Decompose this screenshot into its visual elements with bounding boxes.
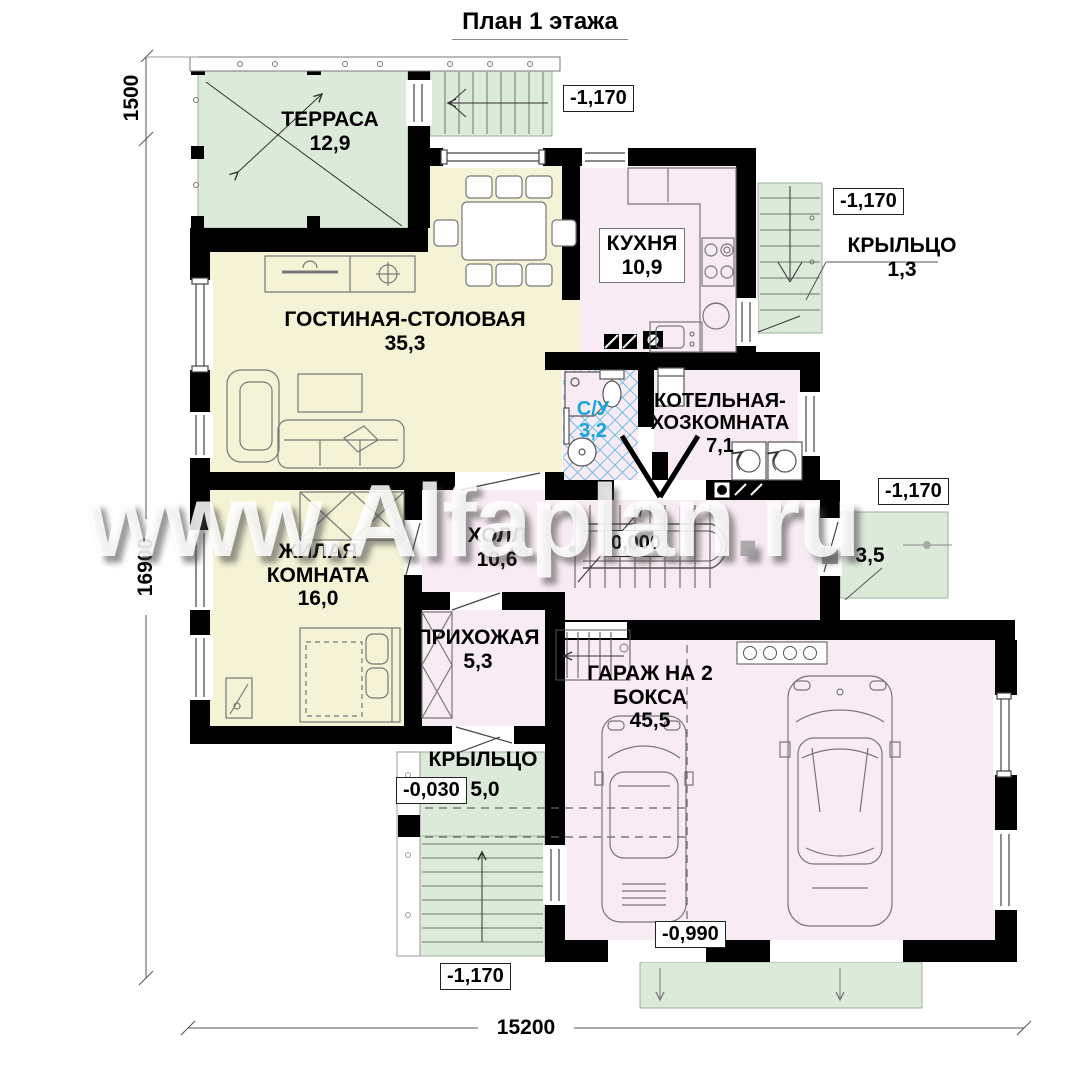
window	[187, 635, 213, 700]
garage-door-opening	[770, 940, 903, 962]
room-area: 10,9	[606, 256, 678, 280]
room-area: 16,0	[238, 587, 398, 611]
room-area: 3,5	[845, 544, 895, 568]
room-area: 35,3	[275, 332, 535, 356]
porch-column	[398, 815, 420, 837]
elevation-badge: -1,170	[563, 85, 634, 112]
elevation-badge: -1,170	[440, 963, 511, 990]
porch-column	[822, 548, 838, 564]
elevation-badge: -1,170	[878, 478, 949, 505]
window	[187, 278, 213, 372]
garage-apron	[640, 962, 922, 1008]
window	[543, 845, 567, 905]
elevation-badge: -0,990	[655, 921, 726, 948]
room-area: 10,6	[447, 548, 547, 572]
window	[187, 530, 213, 610]
dimension-label: 1500	[120, 62, 144, 134]
label-entry: ПРИХОЖАЯ 5,3	[403, 626, 553, 673]
elevation-badge: -1,170	[833, 188, 904, 215]
door-opening	[404, 520, 422, 575]
window	[993, 830, 1019, 910]
dimension-label: 15200	[478, 1016, 574, 1040]
label-porch-right-top: КРЫЛЬЦО 1,3	[832, 234, 972, 281]
label-terrace: ТЕРРАСА 12,9	[250, 108, 410, 155]
window	[993, 693, 1019, 777]
label-hall: ХОЛЛ 10,6	[447, 524, 547, 571]
label-kitchen: КУХНЯ 10,9	[599, 228, 685, 283]
label-bathroom: С/У 3,2	[565, 398, 621, 443]
label-porch-left-name: КРЫЛЬЦО	[418, 748, 548, 772]
elevation-badge: -0,030	[396, 777, 467, 804]
room-area: 5,3	[403, 650, 553, 674]
label-garage: ГАРАЖ НА 2 БОКСА 45,5	[565, 662, 735, 733]
room-area: 3,2	[565, 420, 621, 442]
dimension-label: 16900	[134, 519, 158, 615]
window	[582, 146, 628, 168]
room-area: 12,9	[250, 132, 410, 156]
label-boiler-room: КОТЕЛЬНАЯ- ХОЗКОМНАТА 7,1	[645, 390, 795, 457]
door-opening	[734, 298, 758, 346]
page-title: План 1 этажа	[452, 8, 628, 40]
room-area: 45,5	[565, 709, 735, 733]
window	[441, 146, 545, 168]
door-opening	[450, 592, 502, 610]
elevation-badge: 0,000	[604, 530, 668, 557]
label-living-dining: ГОСТИНАЯ-СТОЛОВАЯ 35,3	[275, 308, 535, 355]
label-living-room: ЖИЛАЯ КОМНАТА 16,0	[238, 540, 398, 611]
floor-plan-page: План 1 этажа ТЕРРАСА 12,9 ГОСТИНАЯ-СТОЛО…	[0, 0, 1080, 1080]
room-area: 1,3	[832, 258, 972, 282]
label-porch-right-mid-area: 3,5	[845, 544, 895, 568]
room-area: 7,1	[645, 435, 795, 457]
window	[187, 412, 213, 458]
toilet-icon	[600, 370, 624, 379]
door-opening	[818, 518, 842, 576]
door-opening	[455, 472, 545, 490]
door-opening	[452, 726, 514, 744]
